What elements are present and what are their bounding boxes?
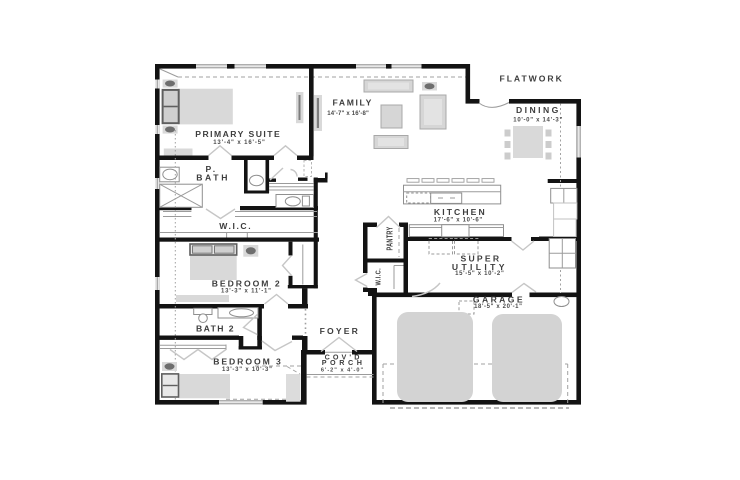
svg-text:FAMILY: FAMILY <box>333 98 372 108</box>
svg-text:18'-5" x 20'-1": 18'-5" x 20'-1" <box>474 304 522 310</box>
svg-text:10'-0" x 14'-3": 10'-0" x 14'-3" <box>513 117 562 123</box>
svg-text:13'-4" x 16'-5": 13'-4" x 16'-5" <box>213 140 265 146</box>
svg-text:W.I.C.: W.I.C. <box>219 221 251 231</box>
svg-text:BATH 2: BATH 2 <box>196 323 234 333</box>
svg-text:13'-3" x 10'-3": 13'-3" x 10'-3" <box>222 367 272 373</box>
svg-text:FLATWORK: FLATWORK <box>500 74 563 84</box>
svg-text:17'-6" x 10'-6": 17'-6" x 10'-6" <box>434 218 483 224</box>
svg-text:13'-3" x 11'-1": 13'-3" x 11'-1" <box>221 289 271 295</box>
svg-text:W.I.C.: W.I.C. <box>376 268 383 286</box>
svg-text:BEDROOM 2: BEDROOM 2 <box>212 278 280 288</box>
svg-text:DINING: DINING <box>516 105 559 115</box>
svg-text:15'-5" x 10'-2": 15'-5" x 10'-2" <box>455 271 504 277</box>
svg-text:6'-2" x 4'-0": 6'-2" x 4'-0" <box>321 368 364 374</box>
svg-text:BEDROOM 3: BEDROOM 3 <box>213 356 281 366</box>
svg-text:14'-7" x 16'-8": 14'-7" x 16'-8" <box>327 111 369 117</box>
svg-text:PANTRY: PANTRY <box>386 226 395 250</box>
svg-text:PRIMARY SUITE: PRIMARY SUITE <box>195 129 280 139</box>
